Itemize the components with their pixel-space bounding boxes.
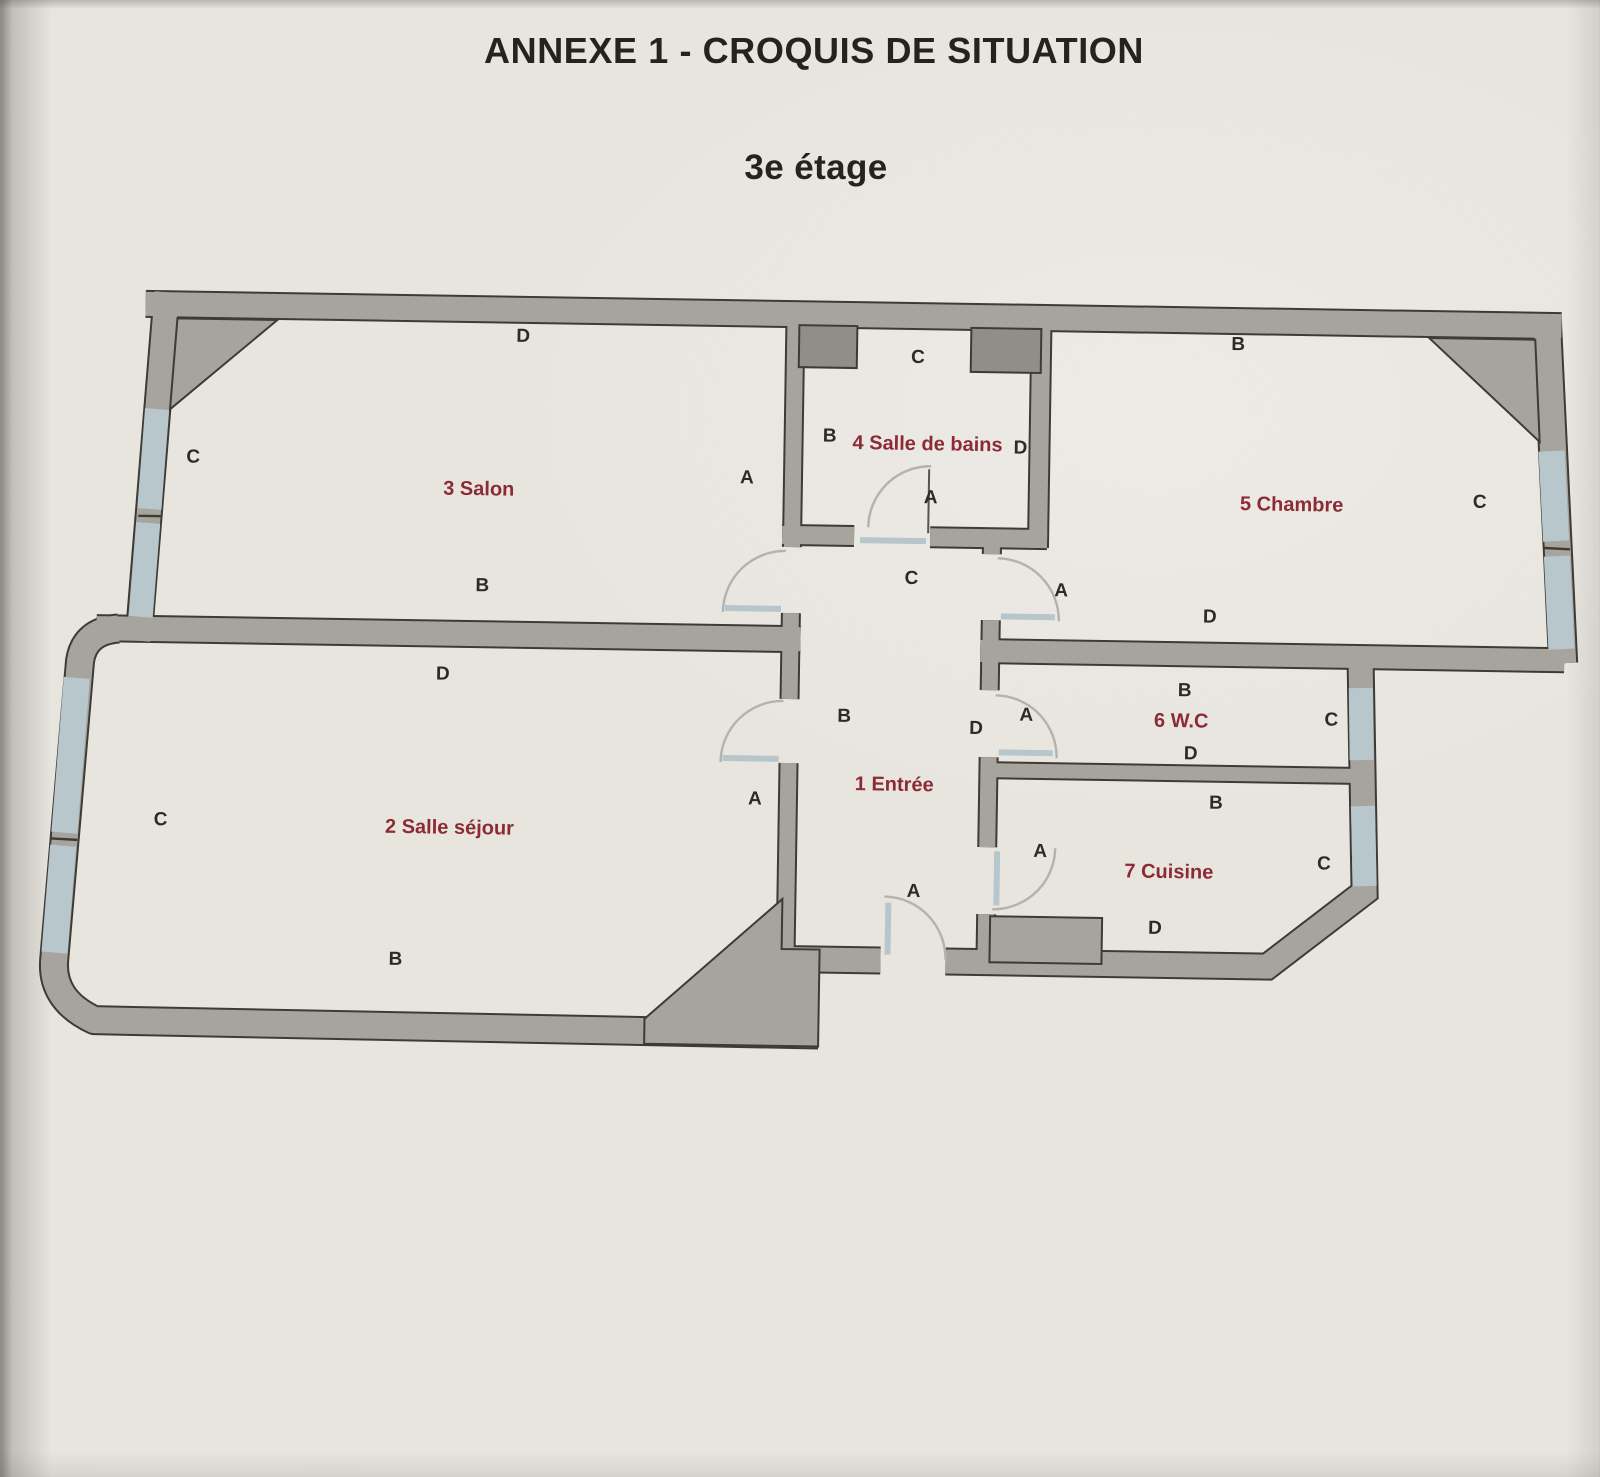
wall-letter-wc-left: A — [1019, 705, 1033, 726]
window-sejour-left-upper — [64, 678, 76, 833]
wall-letter-bains-bottom: A — [924, 487, 938, 508]
wall-letter-entree-bottom: A — [906, 881, 920, 902]
wall-letter-salon-top: D — [516, 326, 530, 347]
room-label-salon: 3 Salon — [443, 478, 514, 501]
wall-letter-wc-right: C — [1324, 709, 1338, 730]
wall-letter-chambre-top: B — [1231, 334, 1245, 355]
window-chambre-right-upper — [1550, 451, 1557, 541]
window-cuisine-right — [1362, 806, 1366, 886]
wall-letter-cuisine-left: A — [1033, 841, 1047, 862]
wall-outlines — [53, 291, 1570, 1047]
room-label-chambre: 5 Chambre — [1240, 493, 1344, 517]
wall-letter-cuisine-right: C — [1317, 853, 1331, 874]
wall-letter-chambre-bottom: D — [1203, 607, 1217, 628]
wall-letter-entree-left: B — [837, 706, 851, 727]
wall-letter-bains-right: D — [1013, 438, 1027, 459]
wall-letter-salon-bottom: B — [475, 575, 489, 596]
wall-letter-entree-right: D — [969, 718, 983, 739]
wall-letter-bains-top: C — [911, 347, 925, 368]
door-leaf-chambre — [1001, 616, 1055, 617]
bathroom-niche-left — [799, 325, 858, 368]
wall-letter-entree-top: C — [904, 568, 918, 589]
chambre-corner-chamfer — [1428, 338, 1542, 442]
wall-letter-chambre-door: A — [1054, 580, 1068, 601]
room-label-salle-sejour: 2 Salle séjour — [385, 816, 515, 840]
door-arc-salle-de-bains — [868, 465, 931, 528]
door-leaf-sejour — [723, 758, 779, 759]
windows — [54, 408, 1564, 977]
wall-letter-cuisine-bottom: D — [1148, 918, 1162, 939]
window-salon-left-upper — [149, 409, 157, 509]
wall-letter-wc-bottom: D — [1184, 743, 1198, 764]
wall-letter-sejour-right: A — [748, 788, 762, 809]
wall-letter-bains-left: B — [823, 426, 837, 447]
room-label-salle-de-bains: 4 Salle de bains — [852, 432, 1002, 456]
wall-letter-sejour-left: C — [154, 809, 168, 830]
floor-plan-figure: 1 Entrée 2 Salle séjour 3 Salon 4 Salle … — [0, 0, 1600, 1477]
room-label-wc: 6 W.C — [1154, 710, 1209, 733]
door-leaf-salon — [725, 608, 781, 609]
wall-letter-wc-top: B — [1178, 680, 1192, 701]
window-wc-right — [1360, 688, 1363, 760]
window-ticks — [51, 515, 1570, 864]
wall-letter-cuisine-top: B — [1209, 793, 1223, 814]
window-sejour-left-lower — [54, 846, 63, 953]
wall-letter-chambre-right: C — [1473, 492, 1487, 513]
floor-plan: 1 Entrée 2 Salle séjour 3 Salon 4 Salle … — [48, 291, 1573, 1059]
door-sill-salle-de-bains — [860, 540, 926, 541]
door-arc-sejour — [721, 700, 784, 763]
salon-corner-chamfer — [170, 318, 277, 411]
door-arc-entrance — [883, 897, 946, 960]
window-chambre-right-lower — [1555, 556, 1562, 649]
door-leaf-wc — [999, 752, 1053, 753]
window-salon-left-lower — [141, 523, 148, 617]
door-arc-salon — [723, 550, 786, 613]
door-leaf-entrance — [888, 903, 889, 955]
room-label-cuisine: 7 Cuisine — [1124, 860, 1213, 883]
door-leaf-cuisine — [996, 851, 997, 905]
kitchen-counter-block — [989, 916, 1102, 964]
wall-letter-sejour-top: D — [436, 663, 450, 684]
wall-letter-salon-left: C — [186, 447, 200, 468]
door-arc-chambre — [997, 558, 1060, 621]
wall-letter-salon-right: A — [740, 467, 754, 488]
wall-letter-sejour-bottom: B — [388, 949, 402, 970]
bathroom-niche-right — [971, 328, 1042, 373]
room-label-entree: 1 Entrée — [855, 773, 934, 796]
